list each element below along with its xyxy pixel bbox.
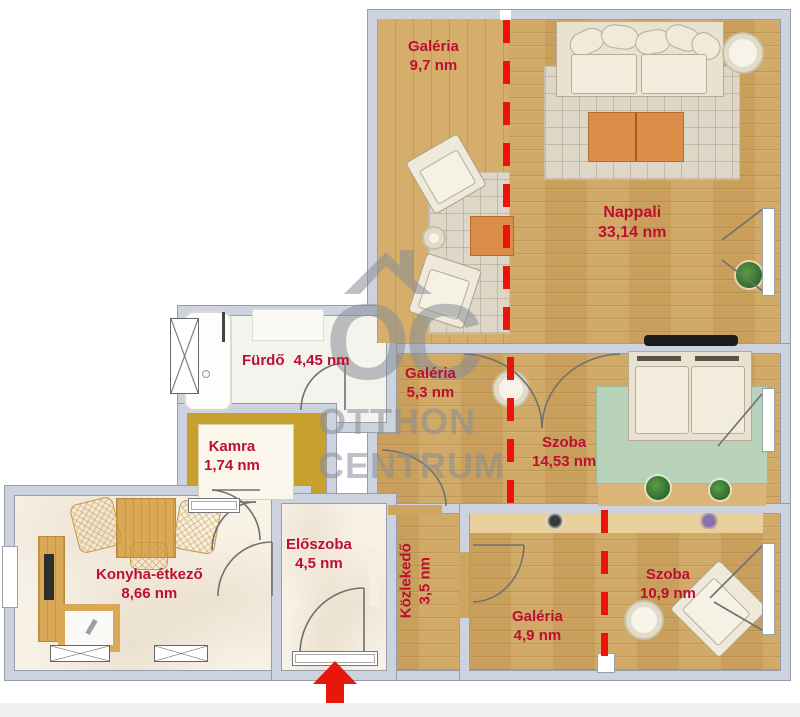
room-area: 14,53 nm: [532, 453, 596, 472]
sofa-cushion: [635, 366, 689, 434]
room-name: Kamra: [204, 438, 260, 457]
room-name: Konyha-étkező: [96, 566, 203, 585]
room-label-kamra: Kamra 1,74 nm: [204, 438, 260, 476]
open-window-lines: [714, 200, 768, 300]
page-background-strip: [0, 703, 800, 717]
room-label-konyha: Konyha-étkező 8,66 nm: [96, 566, 203, 604]
room-label-szoba-mid: Szoba 14,53 nm: [532, 434, 596, 472]
fixture-mark: [222, 312, 225, 342]
window-icon: [2, 546, 18, 608]
room-area: 4,5 nm: [286, 555, 352, 574]
bottom-room-shelf-band: [470, 513, 763, 533]
sofa-back-line: [695, 356, 739, 361]
room-label-eloszoba: Előszoba 4,5 nm: [286, 536, 352, 574]
room-name: Szoba: [640, 566, 696, 585]
arrow-stem: [326, 683, 344, 703]
room-label-furdo: Fürdő 4,45 nm: [242, 352, 350, 371]
room-name: Galéria: [408, 38, 459, 57]
wall-opening: [388, 505, 442, 515]
plant-icon: [646, 476, 670, 500]
wall-opening: [459, 552, 469, 618]
window-icon: [762, 388, 775, 452]
wall-opening: [369, 548, 379, 606]
coffee-table-seam: [635, 113, 637, 161]
room-area: 1,74 nm: [204, 457, 260, 476]
faucet-icon: [85, 619, 97, 635]
room-area: 4,45 nm: [294, 352, 350, 369]
kitchen-door-arc: [206, 486, 264, 542]
room-area: 3,5 nm: [416, 521, 435, 641]
floorplan-canvas: OC OTTHON CENTRUM Galéria 9,7 nm Nappali…: [0, 0, 800, 717]
door-threshold: [188, 498, 240, 513]
room-name: Fürdő: [242, 352, 285, 369]
room-label-kozlekedo: Közlekedő 3,5 nm: [397, 521, 435, 641]
decor-item: [546, 513, 564, 529]
room-name: Galéria: [405, 365, 456, 384]
bathroom-counter: [252, 309, 324, 341]
room-area: 8,66 nm: [96, 585, 203, 604]
room-name: Galéria: [512, 608, 563, 627]
sofa: [556, 21, 724, 97]
room-label-nappali: Nappali 33,14 nm: [598, 203, 666, 243]
room-area: 10,9 nm: [640, 585, 696, 604]
room-label-galeria-top: Galéria 9,7 nm: [408, 38, 459, 76]
gallery-boundary-dashed-line: [503, 20, 510, 346]
room-label-szoba-bottom: Szoba 10,9 nm: [640, 566, 696, 604]
double-door-arc: [456, 350, 628, 430]
tv: [644, 335, 738, 346]
entrance-arrow-icon: [313, 661, 357, 705]
gallery-boundary-dashed-line: [601, 510, 608, 670]
sofa-pillow: [600, 22, 641, 51]
window-icon: [762, 543, 775, 635]
sofa-cushion: [641, 54, 707, 94]
open-window-line: [712, 388, 766, 452]
lamp-icon: [422, 226, 446, 250]
room-label-galeria-mid: Galéria 5,3 nm: [405, 365, 456, 403]
window-icon: [154, 645, 208, 662]
oven: [44, 554, 54, 600]
drain-icon: [202, 370, 210, 378]
entrance-door-arc: [294, 584, 370, 656]
room-area: 33,14 nm: [598, 223, 666, 243]
flower-decor-icon: [700, 513, 718, 529]
plant-icon: [710, 480, 730, 500]
coffee-table: [588, 112, 684, 162]
wall-joint-gap: [500, 10, 511, 20]
ceiling-lamp-icon: [624, 600, 664, 640]
room-label-galeria-bottom: Galéria 4,9 nm: [512, 608, 563, 646]
open-window-lines: [700, 542, 766, 634]
window-icon: [762, 208, 775, 296]
window-icon: [50, 645, 110, 662]
sofa-cushion: [571, 54, 637, 94]
ceiling-lamp-icon: [722, 32, 764, 74]
room-area: 5,3 nm: [405, 384, 456, 403]
room-name: Nappali: [598, 203, 666, 223]
window-icon: [170, 318, 199, 394]
room-name: Szoba: [532, 434, 596, 453]
sofa-back-line: [637, 356, 681, 361]
room-area: 4,9 nm: [512, 627, 563, 646]
room-area: 9,7 nm: [408, 57, 459, 76]
room-name: Közlekedő: [397, 521, 416, 641]
arrow-head: [313, 661, 357, 684]
gallery-boundary-dashed-line: [507, 357, 514, 507]
gallery-door-arc: [468, 540, 528, 606]
room-name: Előszoba: [286, 536, 352, 555]
kitchen-door-arc: [214, 538, 276, 600]
door-arc: [378, 446, 450, 510]
